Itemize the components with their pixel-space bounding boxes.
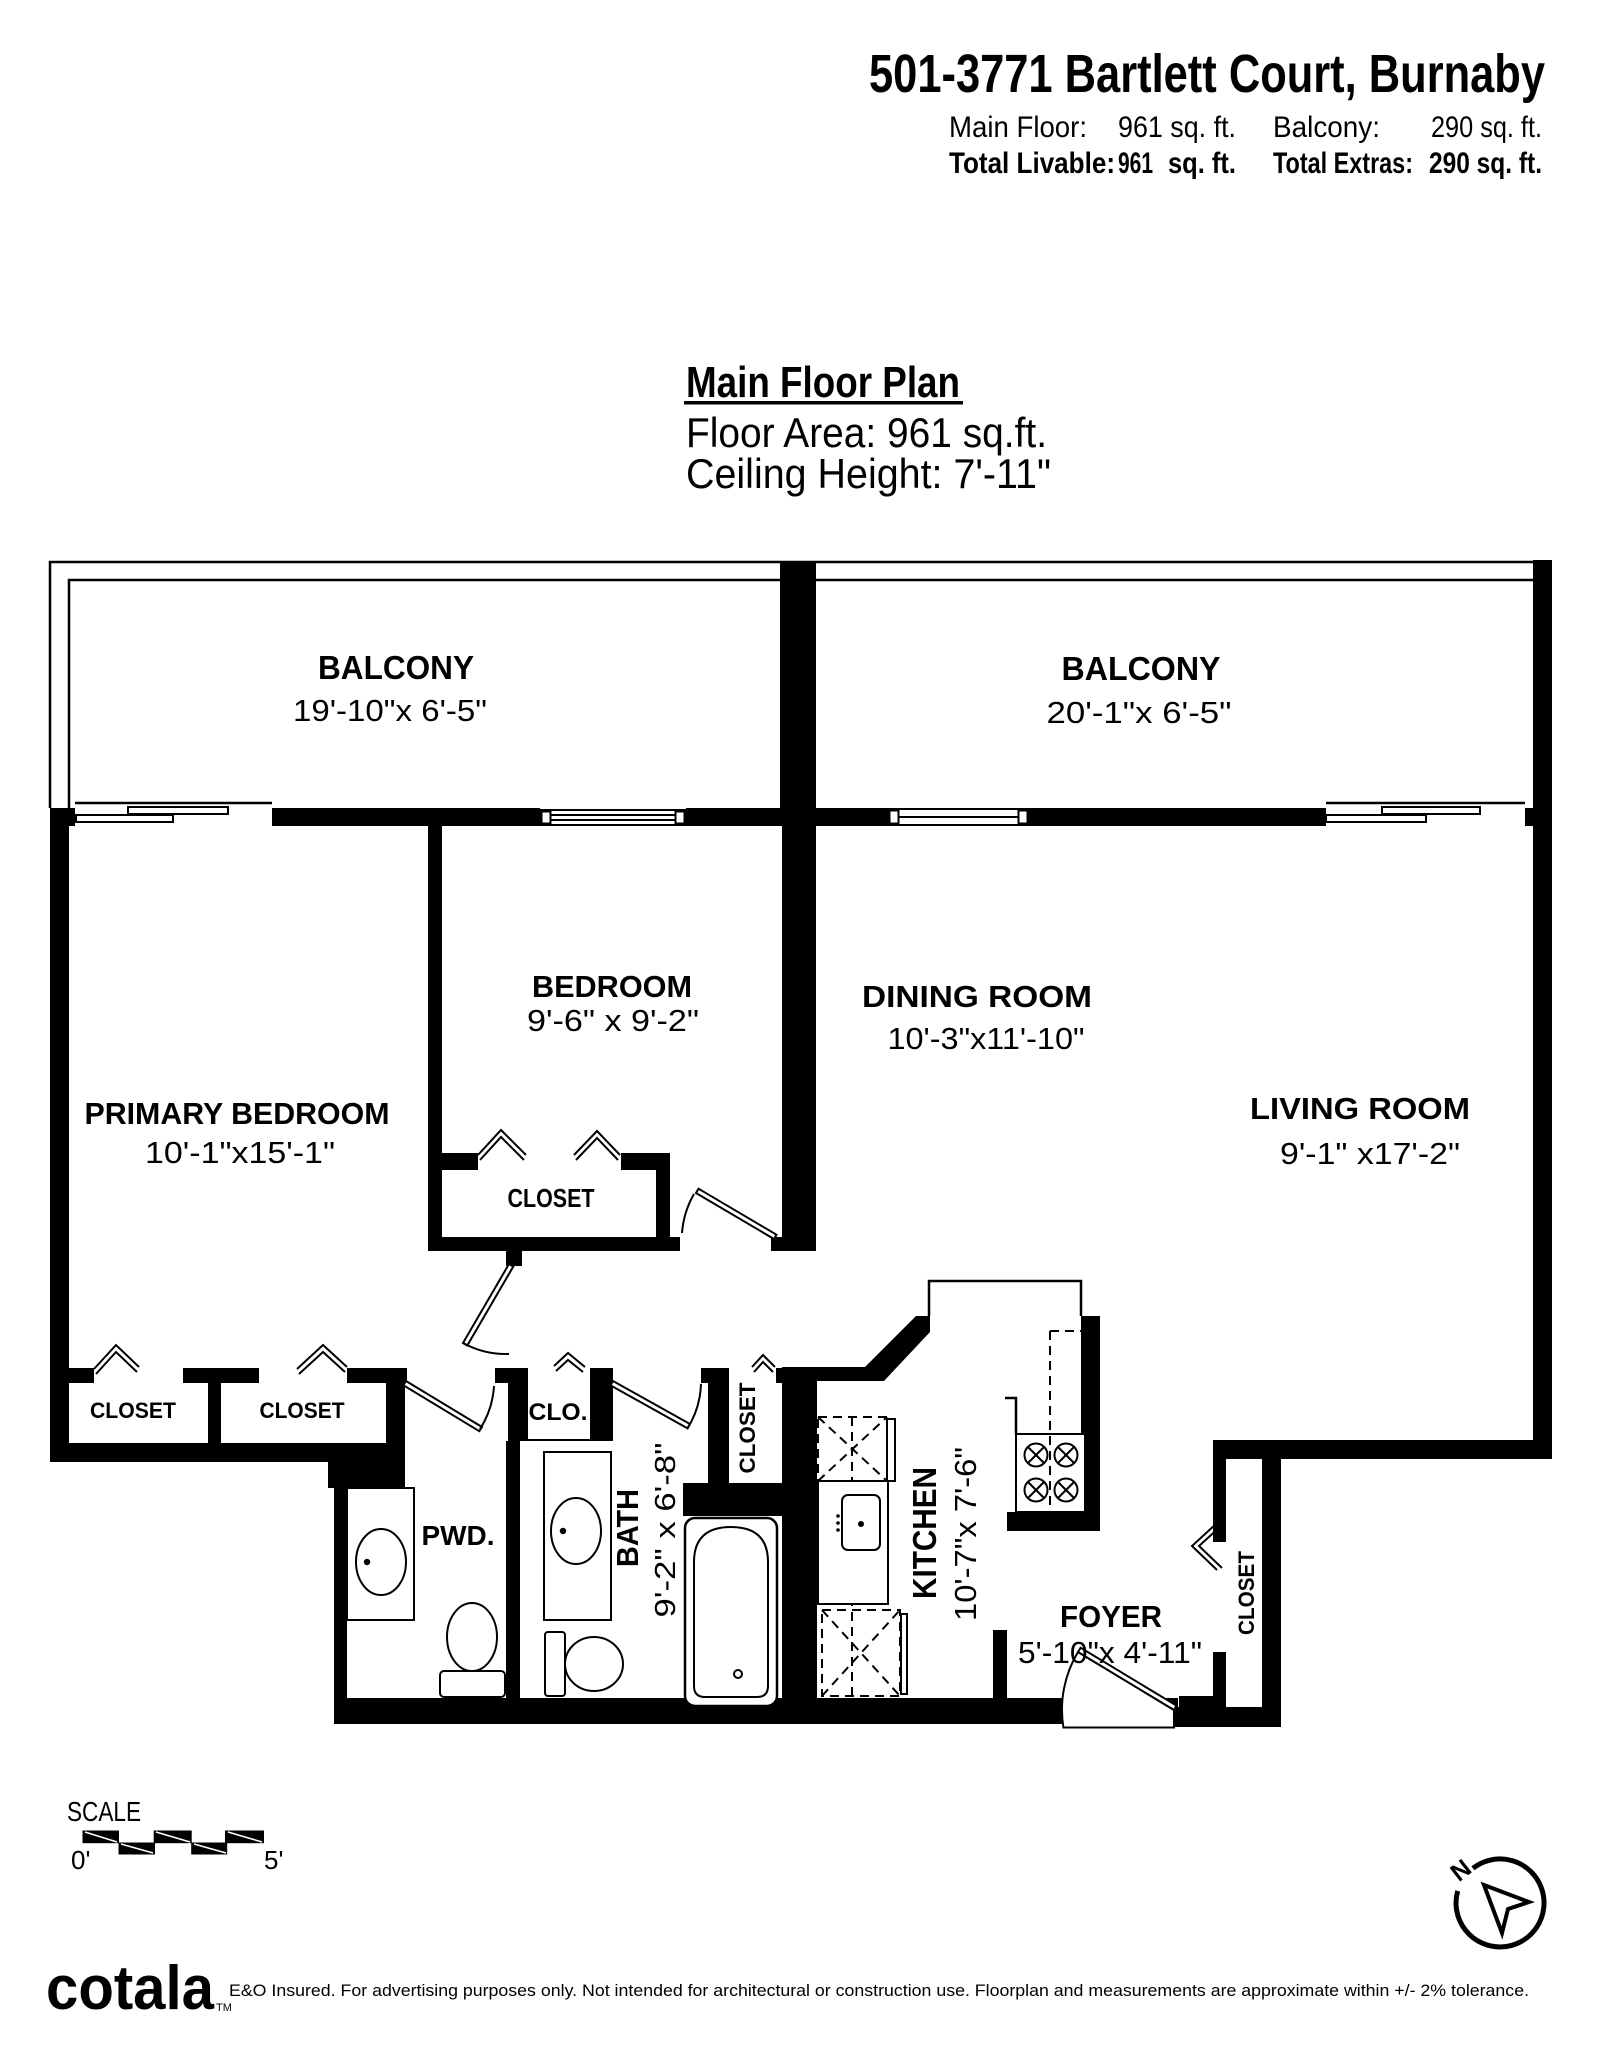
svg-text:DINING ROOM: DINING ROOM bbox=[862, 979, 1092, 1014]
svg-text:cotala: cotala bbox=[46, 1954, 214, 2023]
svg-text:961: 961 bbox=[1118, 147, 1153, 180]
svg-text:CLOSET: CLOSET bbox=[90, 1398, 177, 1423]
svg-text:CLOSET: CLOSET bbox=[1234, 1550, 1259, 1635]
svg-text:9'-1" x17'-2": 9'-1" x17'-2" bbox=[1280, 1136, 1460, 1171]
svg-text:Total Livable:: Total Livable: bbox=[949, 147, 1115, 180]
svg-text:PWD.: PWD. bbox=[422, 1520, 495, 1551]
svg-text:CLOSET: CLOSET bbox=[260, 1398, 346, 1423]
svg-text:TM: TM bbox=[216, 2002, 232, 2014]
svg-text:BATH: BATH bbox=[610, 1489, 645, 1567]
svg-text:CLO.: CLO. bbox=[529, 1399, 588, 1426]
svg-text:Main Floor Plan: Main Floor Plan bbox=[686, 358, 960, 407]
svg-text:290 sq. ft.: 290 sq. ft. bbox=[1429, 147, 1542, 180]
svg-text:961 sq. ft.: 961 sq. ft. bbox=[1118, 111, 1236, 144]
svg-text:FOYER: FOYER bbox=[1060, 1599, 1162, 1634]
svg-text:Floor Area: 961 sq.ft.: Floor Area: 961 sq.ft. bbox=[686, 409, 1047, 456]
svg-text:LIVING ROOM: LIVING ROOM bbox=[1250, 1091, 1470, 1126]
svg-text:Main Floor:: Main Floor: bbox=[949, 111, 1087, 144]
svg-text:10'-7"x 7'-6": 10'-7"x 7'-6" bbox=[948, 1447, 983, 1621]
svg-text:BEDROOM: BEDROOM bbox=[532, 969, 692, 1004]
svg-text:0': 0' bbox=[71, 1845, 90, 1875]
svg-text:sq. ft.: sq. ft. bbox=[1168, 147, 1236, 180]
svg-text:SCALE: SCALE bbox=[67, 1796, 141, 1827]
svg-text:290 sq. ft.: 290 sq. ft. bbox=[1431, 111, 1542, 144]
svg-text:5': 5' bbox=[264, 1845, 283, 1875]
svg-text:9'-6" x 9'-2": 9'-6" x 9'-2" bbox=[527, 1003, 699, 1038]
svg-text:E&O Insured. For advertising p: E&O Insured. For advertising purposes on… bbox=[229, 1982, 1529, 2000]
svg-text:KITCHEN: KITCHEN bbox=[906, 1467, 943, 1599]
svg-text:PRIMARY BEDROOM: PRIMARY BEDROOM bbox=[85, 1096, 390, 1131]
svg-text:9'-2" x 6'-8": 9'-2" x 6'-8" bbox=[650, 1443, 682, 1618]
svg-text:20'-1"x 6'-5": 20'-1"x 6'-5" bbox=[1047, 695, 1232, 730]
svg-text:10'-1"x15'-1": 10'-1"x15'-1" bbox=[145, 1135, 335, 1170]
svg-text:10'-3"x11'-10": 10'-3"x11'-10" bbox=[888, 1021, 1085, 1056]
svg-text:CLOSET: CLOSET bbox=[735, 1382, 760, 1474]
svg-text:501-3771 Bartlett Court, Burna: 501-3771 Bartlett Court, Burnaby bbox=[869, 44, 1545, 104]
svg-text:5'-10"x 4'-11": 5'-10"x 4'-11" bbox=[1018, 1635, 1202, 1670]
svg-text:19'-10"x 6'-5": 19'-10"x 6'-5" bbox=[293, 693, 487, 728]
svg-text:CLOSET: CLOSET bbox=[508, 1183, 595, 1213]
svg-text:BALCONY: BALCONY bbox=[1062, 650, 1221, 687]
svg-text:Balcony:: Balcony: bbox=[1273, 111, 1380, 144]
svg-text:BALCONY: BALCONY bbox=[318, 649, 474, 686]
svg-text:Total Extras:: Total Extras: bbox=[1273, 147, 1413, 180]
svg-text:Ceiling Height: 7'-11": Ceiling Height: 7'-11" bbox=[686, 450, 1051, 497]
